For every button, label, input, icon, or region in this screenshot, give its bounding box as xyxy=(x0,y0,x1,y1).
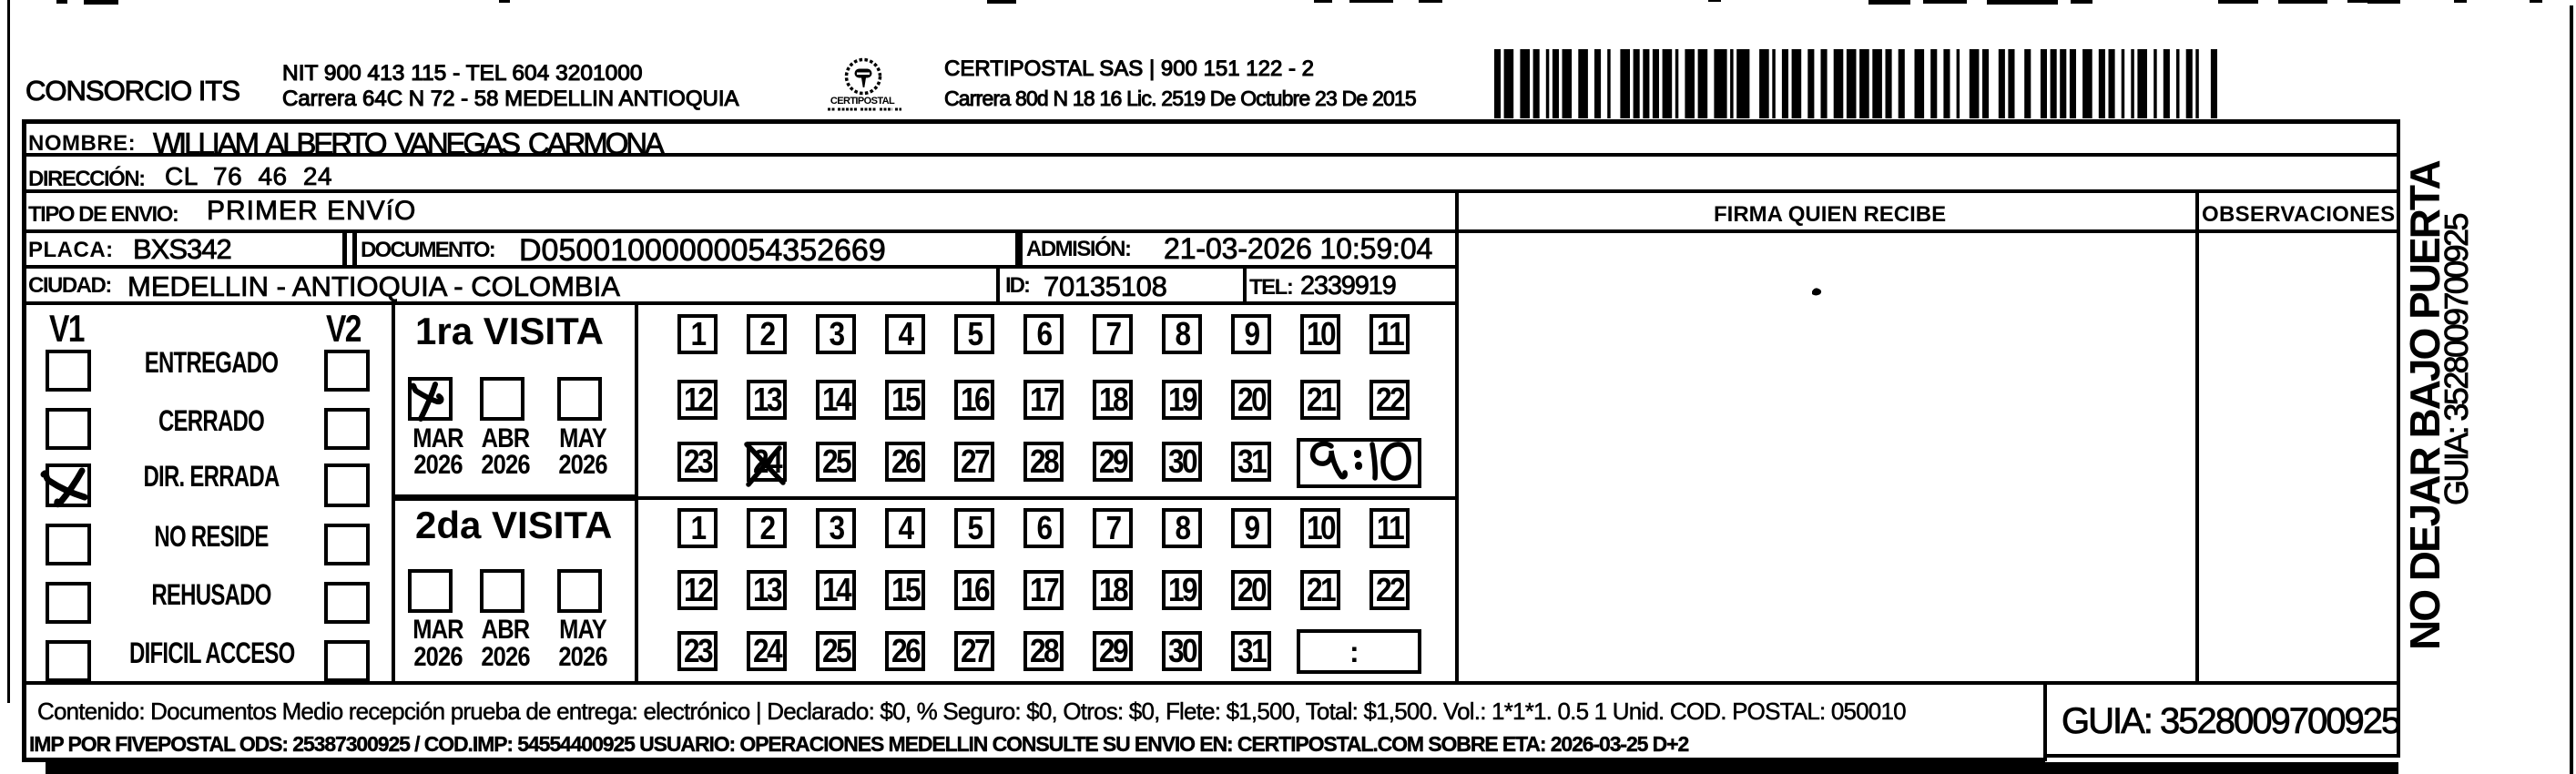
svg-text:CERTIPOSTAL: CERTIPOSTAL xyxy=(830,96,895,107)
